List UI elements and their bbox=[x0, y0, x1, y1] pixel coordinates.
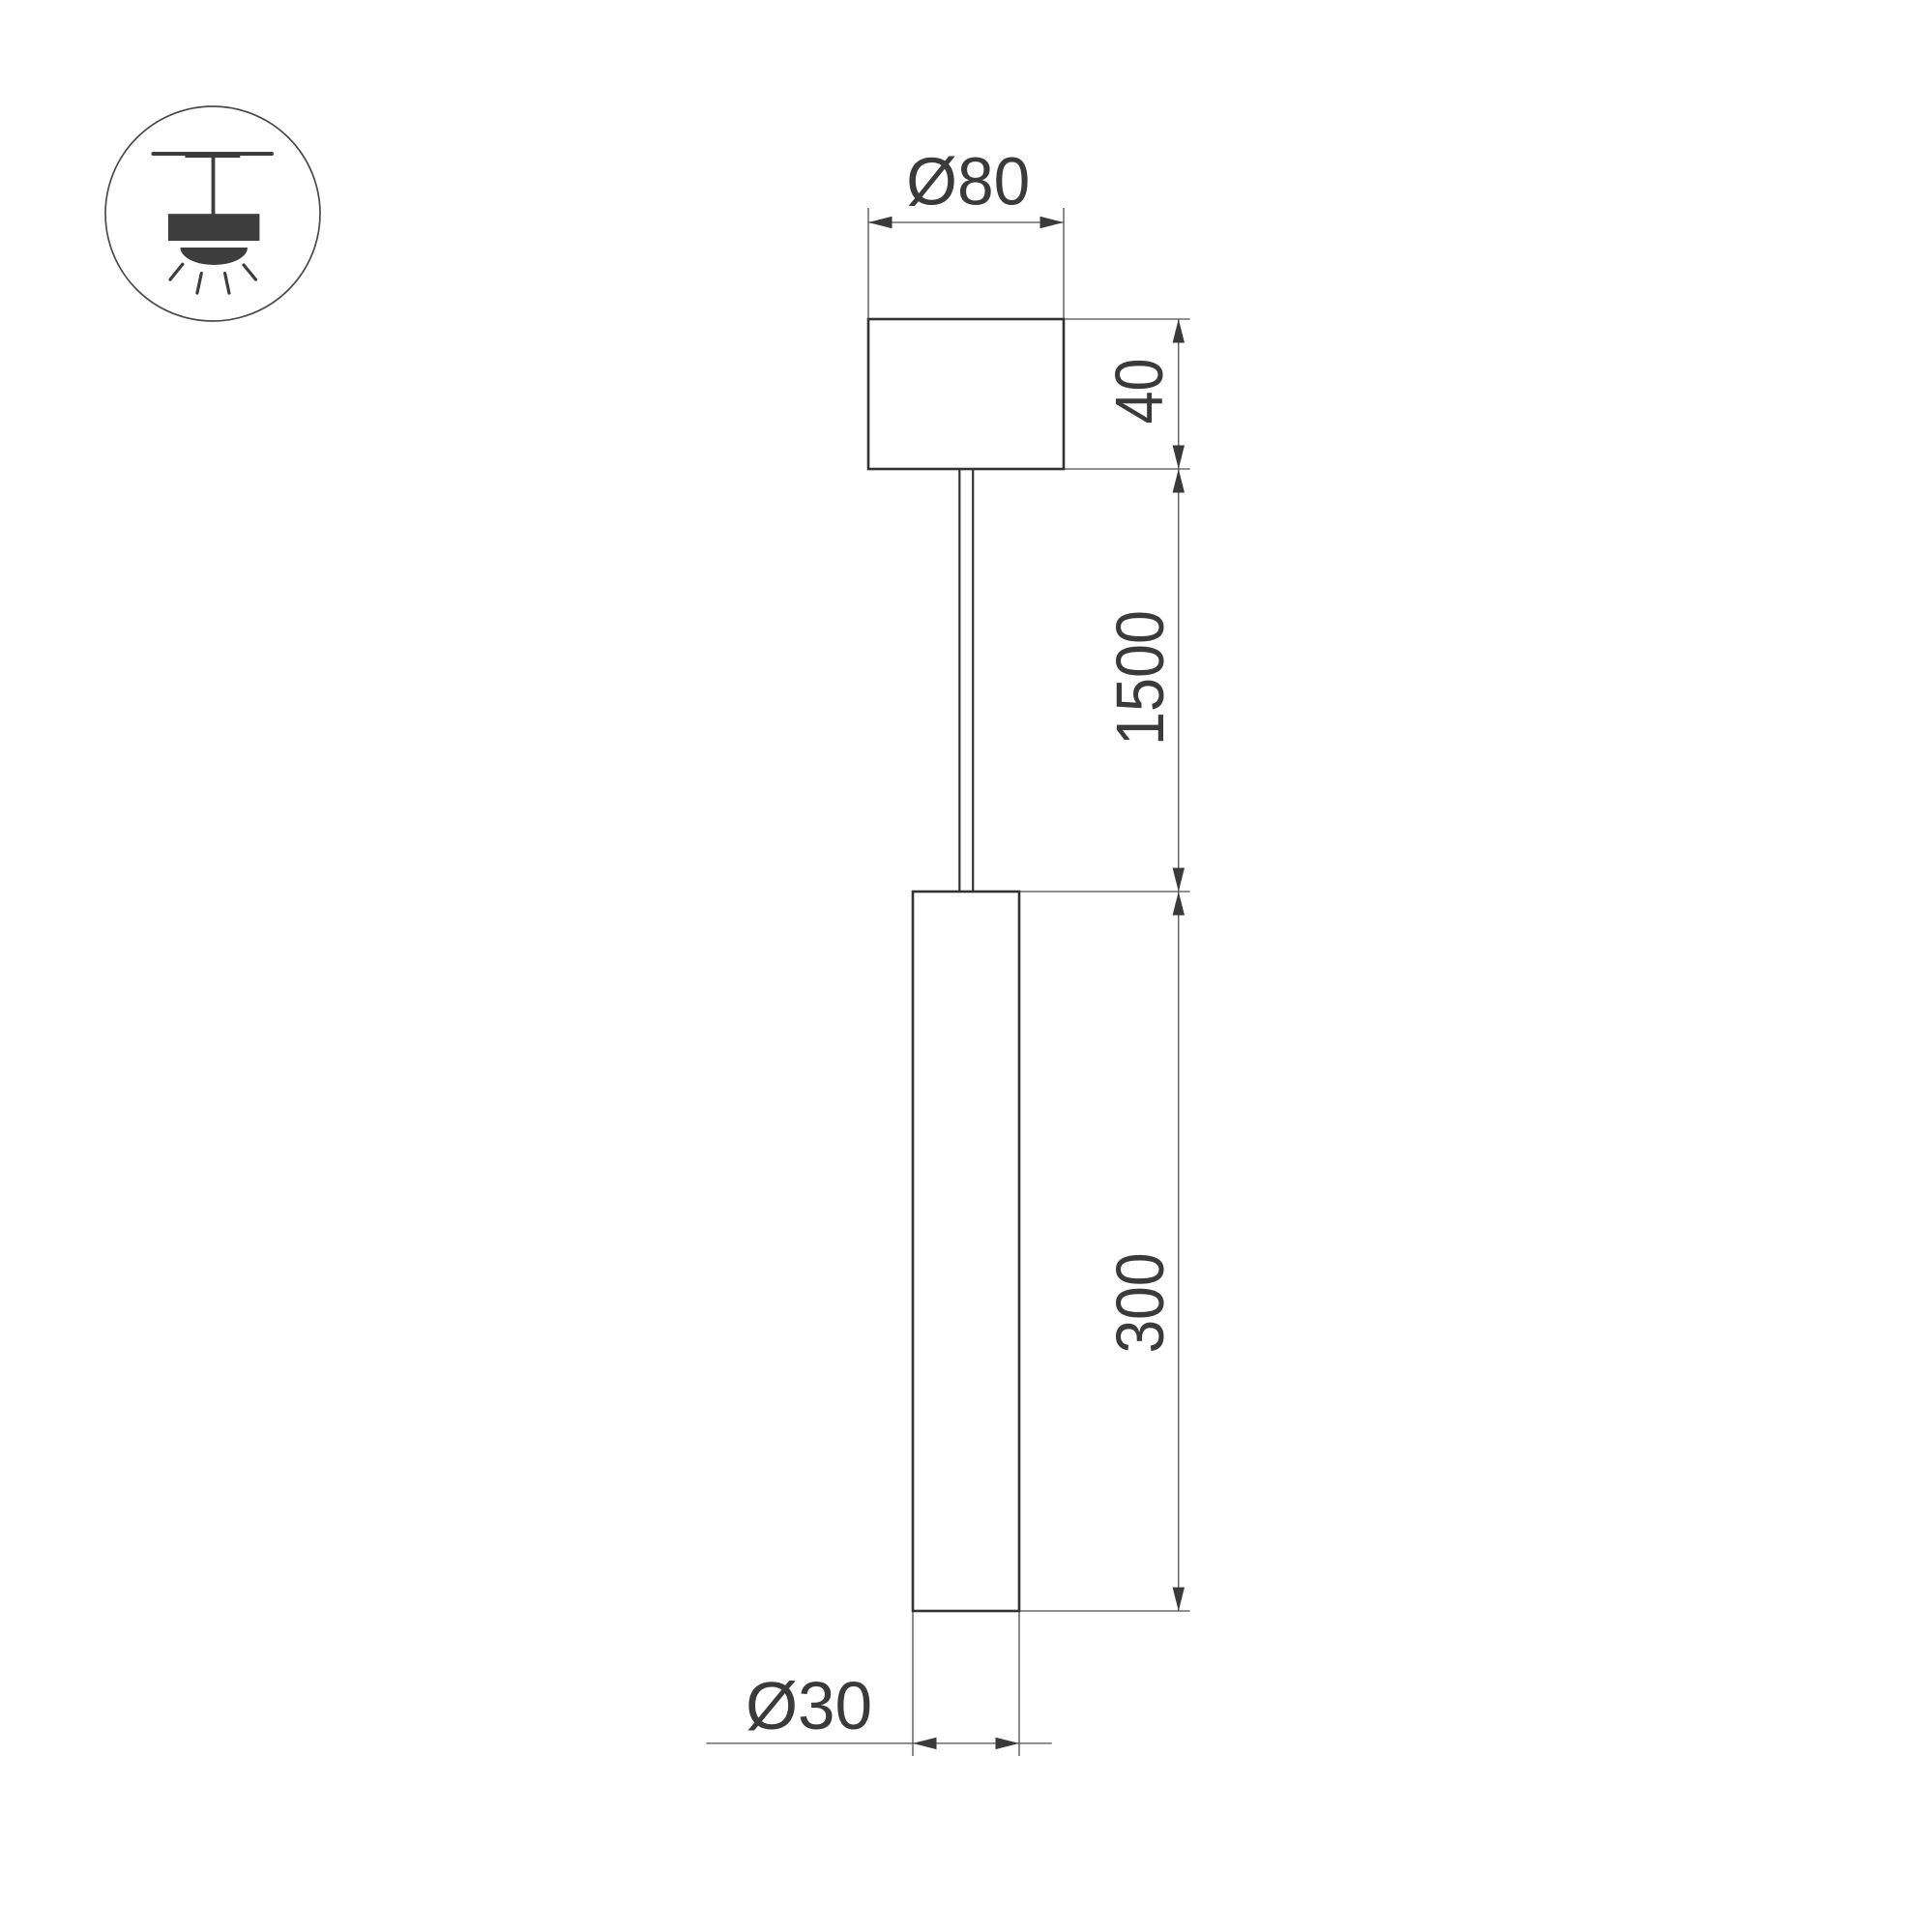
svg-text:Ø80: Ø80 bbox=[906, 144, 1030, 220]
svg-text:40: 40 bbox=[1101, 359, 1177, 424]
svg-text:Ø30: Ø30 bbox=[746, 1668, 872, 1743]
svg-text:1500: 1500 bbox=[1102, 610, 1178, 746]
svg-text:300: 300 bbox=[1102, 1253, 1178, 1354]
